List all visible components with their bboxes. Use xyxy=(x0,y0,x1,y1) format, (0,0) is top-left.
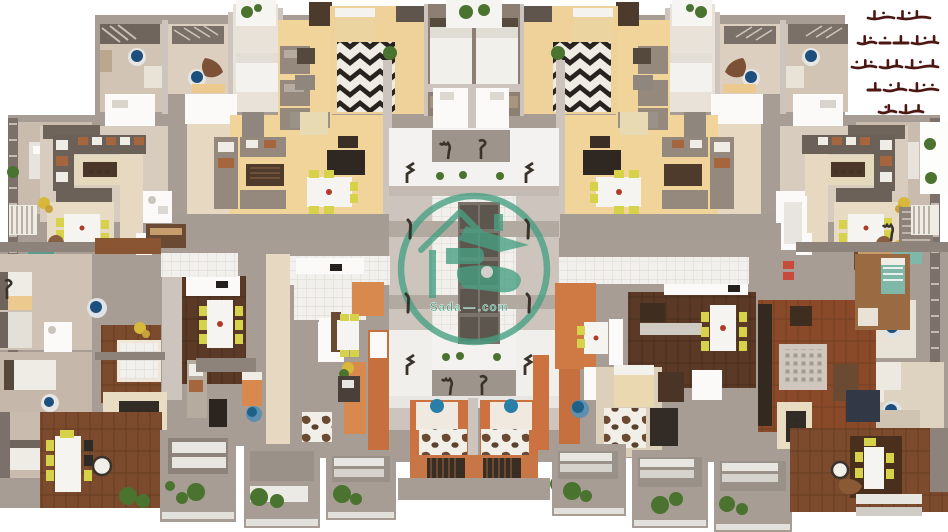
svg-text:Sada — .com: Sada — .com xyxy=(430,302,509,314)
